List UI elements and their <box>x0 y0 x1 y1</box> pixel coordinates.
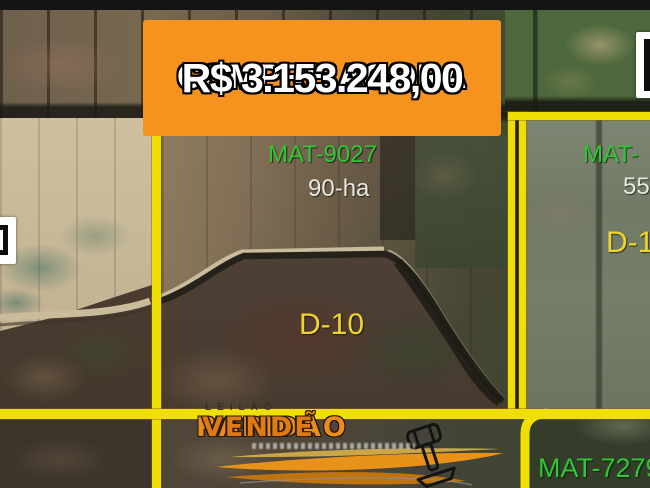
logo-tagline-illegible <box>252 443 415 449</box>
brand-word-vende: VENDE <box>202 412 315 443</box>
satellite-listing-image: COMPRE AGORA R$ 3.153.248,00 MAT-9027 90… <box>0 0 650 488</box>
